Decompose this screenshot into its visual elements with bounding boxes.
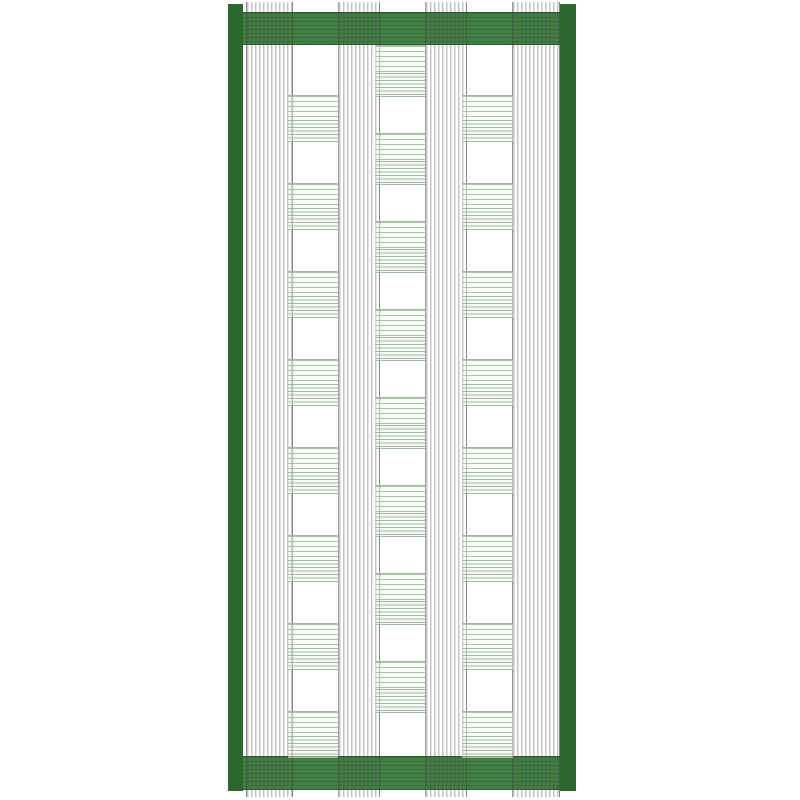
weft-thread-block [462, 95, 513, 142]
weft-thread-block [375, 661, 425, 713]
weft-thread-block [375, 485, 425, 537]
warp-thread-group [338, 2, 380, 797]
weft-thread-block [462, 359, 513, 406]
weft-thread-block [462, 271, 513, 318]
weft-thread-block [375, 221, 425, 273]
weft-thread-block [288, 183, 338, 230]
weft-thread-block [288, 447, 338, 494]
woven-pattern-canvas [0, 0, 800, 800]
weft-thread-block [375, 397, 425, 449]
warp-thread-group [512, 2, 560, 797]
weft-thread-block [375, 309, 425, 361]
frame-left-bar [228, 4, 243, 791]
weft-thread-block [288, 359, 338, 406]
weft-thread-block [462, 447, 513, 494]
weft-thread-block [462, 183, 513, 230]
weft-thread-block [288, 535, 338, 582]
weft-thread-block [462, 535, 513, 582]
warp-thread-group [425, 2, 467, 797]
weft-thread-block [375, 133, 425, 185]
weft-thread-block [288, 623, 338, 670]
weft-thread-block [375, 45, 425, 97]
warp-thread-group [246, 2, 293, 797]
weft-thread-block [375, 573, 425, 625]
weft-thread-block [288, 95, 338, 142]
weft-thread-block [288, 271, 338, 318]
weft-thread-block [288, 711, 338, 758]
weft-thread-block [462, 623, 513, 670]
frame-right-bar [560, 4, 576, 791]
weft-thread-block [462, 711, 513, 758]
